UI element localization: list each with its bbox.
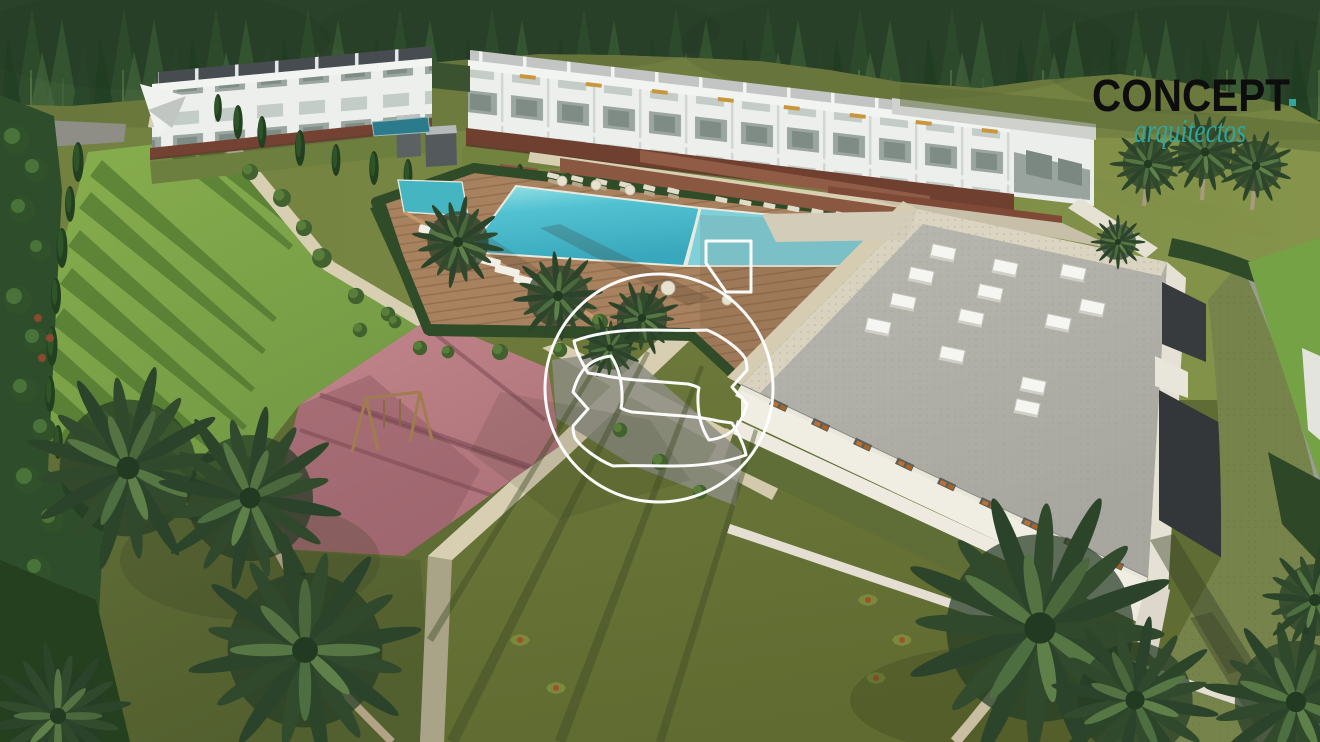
- svg-text:arquitectos: arquitectos: [1134, 113, 1246, 150]
